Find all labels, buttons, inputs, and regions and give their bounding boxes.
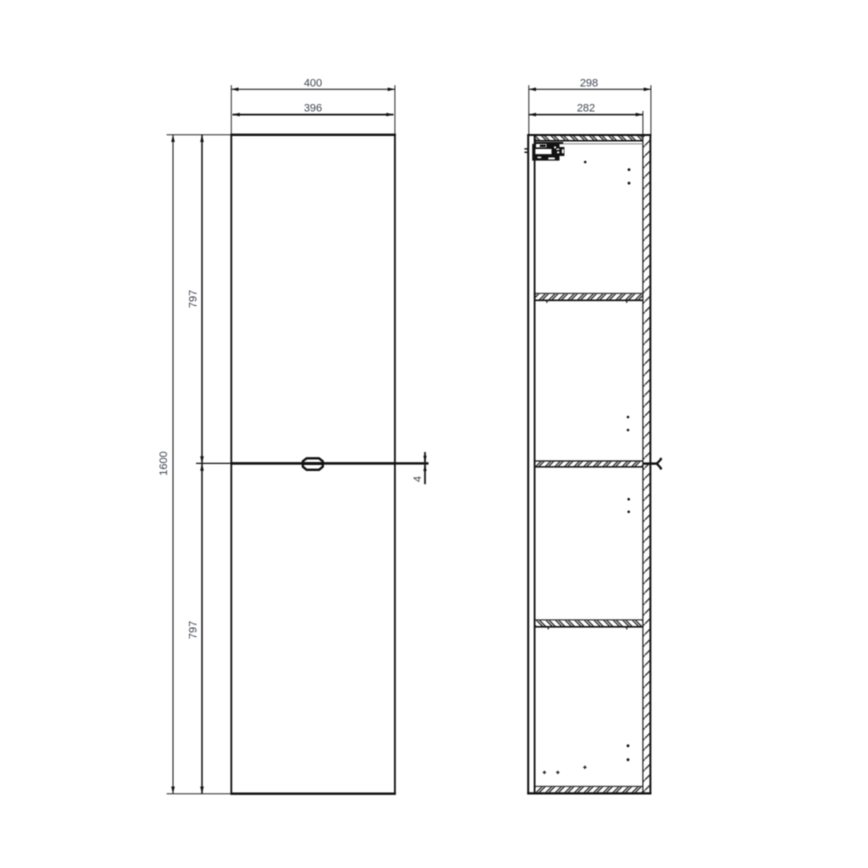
svg-text:1600: 1600 <box>158 451 170 475</box>
svg-text:797: 797 <box>188 621 200 639</box>
svg-text:282: 282 <box>577 102 595 114</box>
svg-text:396: 396 <box>304 102 322 114</box>
svg-text:4: 4 <box>412 476 424 482</box>
svg-text:797: 797 <box>188 290 200 308</box>
svg-text:400: 400 <box>304 77 322 89</box>
svg-text:298: 298 <box>580 77 598 89</box>
